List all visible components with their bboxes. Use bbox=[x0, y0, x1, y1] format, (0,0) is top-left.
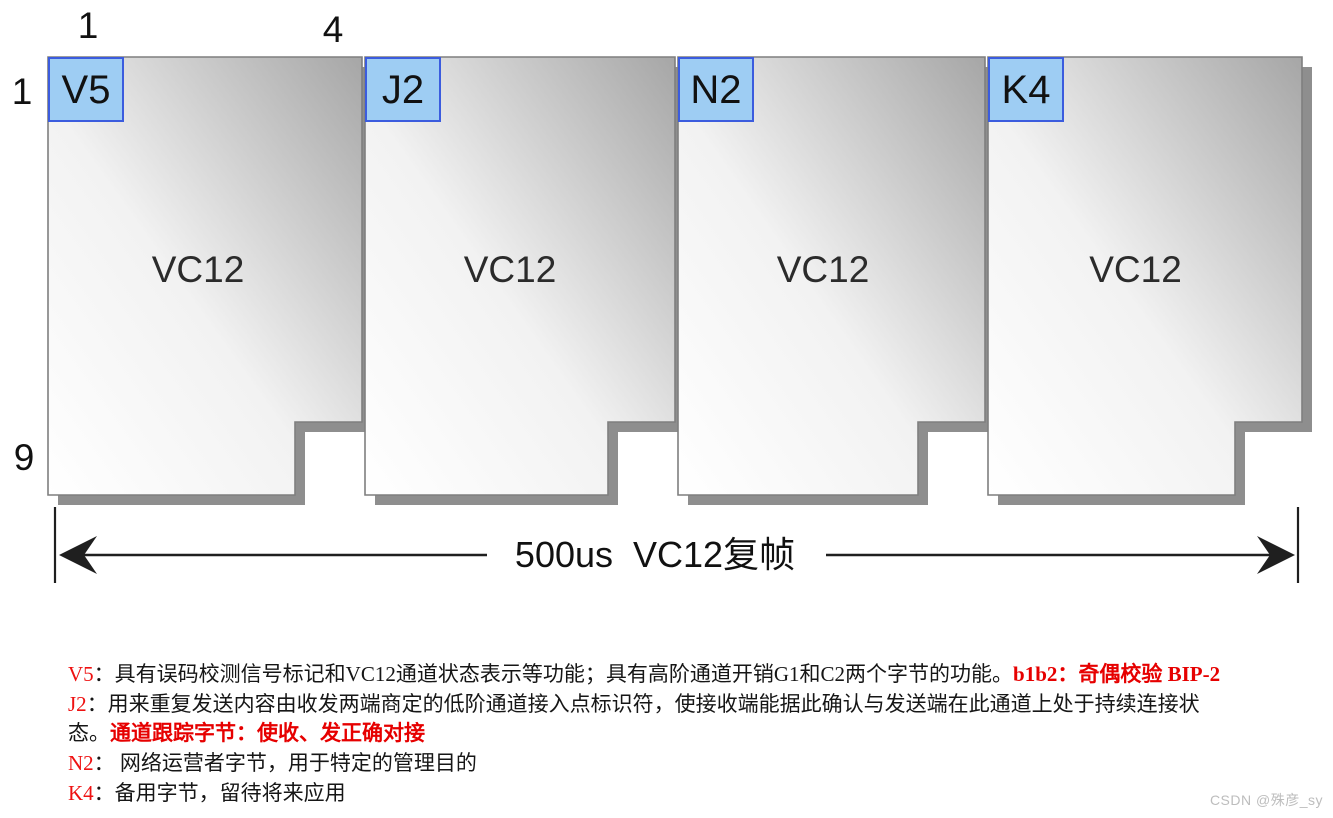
note-body-v5: ：具有误码校测信号标记和VC12通道状态表示等功能；具有高阶通道开销G1和C2两… bbox=[94, 662, 1013, 686]
note-line-n2: N2： 网络运营者字节，用于特定的管理目的 bbox=[68, 749, 1330, 779]
note-line-v5: V5：具有误码校测信号标记和VC12通道状态表示等功能；具有高阶通道开销G1和C… bbox=[68, 660, 1330, 690]
note-body-j2-cont: 态。 bbox=[68, 721, 110, 745]
row-label-start: 1 bbox=[4, 72, 40, 112]
byte-cell-j2: J2 bbox=[365, 57, 441, 122]
byte-cell-k4-label: K4 bbox=[1002, 70, 1051, 110]
note-line-j2-cont: 态。通道跟踪字节：使收、发正确对接 bbox=[68, 719, 1330, 749]
byte-cell-n2: N2 bbox=[678, 57, 754, 122]
row-label-end: 9 bbox=[6, 438, 42, 478]
note-line-k4: K4：备用字节，留待将来应用 bbox=[68, 779, 1330, 809]
note-prefix-v5: V5 bbox=[68, 662, 94, 686]
byte-cell-v5: V5 bbox=[48, 57, 124, 122]
note-prefix-j2: J2 bbox=[68, 692, 87, 716]
note-line-j2: J2：用来重复发送内容由收发两端商定的低阶通道接入点标识符，使接收端能据此确认与… bbox=[68, 690, 1330, 720]
byte-descriptions: V5：具有误码校测信号标记和VC12通道状态表示等功能；具有高阶通道开销G1和C… bbox=[68, 660, 1330, 809]
column-label-start: 1 bbox=[70, 6, 106, 46]
byte-cell-j2-label: J2 bbox=[382, 70, 424, 110]
vc12-label-3: VC12 bbox=[678, 248, 968, 292]
csdn-watermark: CSDN @殊彦_sy bbox=[1210, 790, 1323, 810]
note-prefix-k4: K4 bbox=[68, 781, 94, 805]
note-highlight-v5: b1b2：奇偶校验 BIP-2 bbox=[1013, 662, 1220, 686]
vc12-multiframe-diagram: 1 4 1 9 V5 J2 N2 K4 VC12 VC12 VC12 VC12 … bbox=[0, 0, 1333, 818]
note-prefix-n2: N2 bbox=[68, 751, 94, 775]
note-highlight-j2-cont: 通道跟踪字节：使收、发正确对接 bbox=[110, 721, 425, 745]
vc12-label-1: VC12 bbox=[48, 248, 348, 292]
note-body-n2: ： 网络运营者字节，用于特定的管理目的 bbox=[94, 751, 477, 775]
byte-cell-k4: K4 bbox=[988, 57, 1064, 122]
byte-cell-v5-label: V5 bbox=[62, 70, 111, 110]
byte-cell-n2-label: N2 bbox=[690, 70, 741, 110]
vc12-label-4: VC12 bbox=[988, 248, 1283, 292]
note-body-k4: ：备用字节，留待将来应用 bbox=[94, 781, 346, 805]
multiframe-arrow-label: 500us VC12复帧 bbox=[420, 533, 890, 577]
vc12-label-2: VC12 bbox=[365, 248, 655, 292]
column-label-end: 4 bbox=[315, 10, 351, 50]
note-body-j2: ：用来重复发送内容由收发两端商定的低阶通道接入点标识符，使接收端能据此确认与发送… bbox=[87, 692, 1200, 716]
